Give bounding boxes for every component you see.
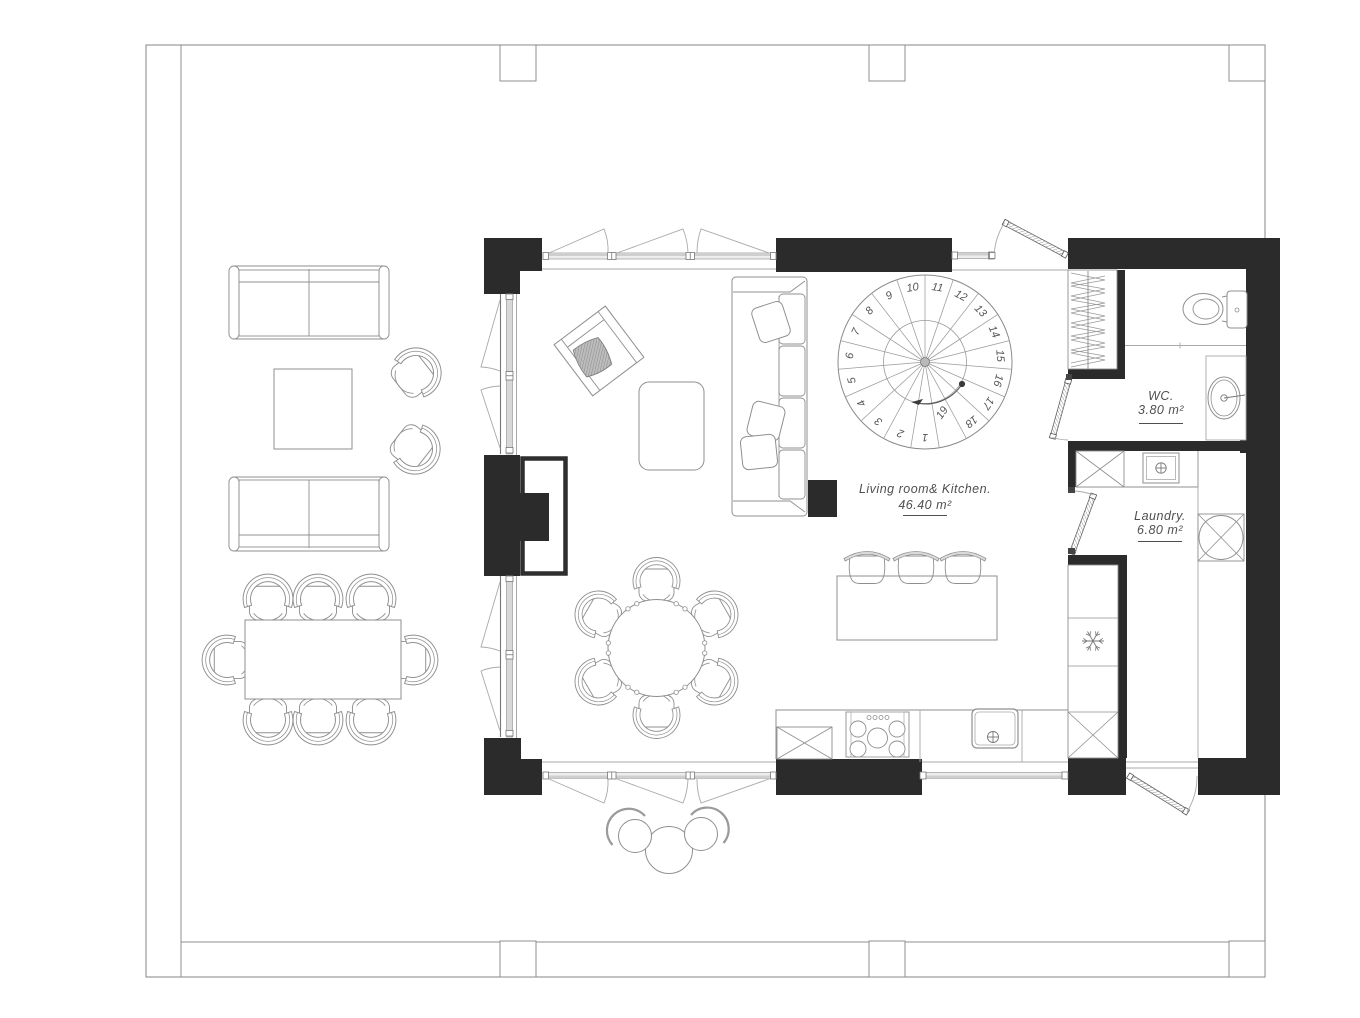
svg-text:1: 1 (922, 431, 928, 443)
svg-text:Living room& Kitchen.: Living room& Kitchen. (859, 482, 991, 496)
svg-text:Laundry.: Laundry. (1134, 509, 1186, 523)
svg-text:6.80 m²: 6.80 m² (1137, 523, 1183, 537)
svg-text:46.40 m²: 46.40 m² (898, 498, 952, 512)
svg-text:3.80 m²: 3.80 m² (1138, 403, 1184, 417)
svg-text:15: 15 (993, 349, 1006, 363)
svg-text:WC.: WC. (1148, 389, 1174, 403)
svg-text:11: 11 (931, 281, 944, 295)
